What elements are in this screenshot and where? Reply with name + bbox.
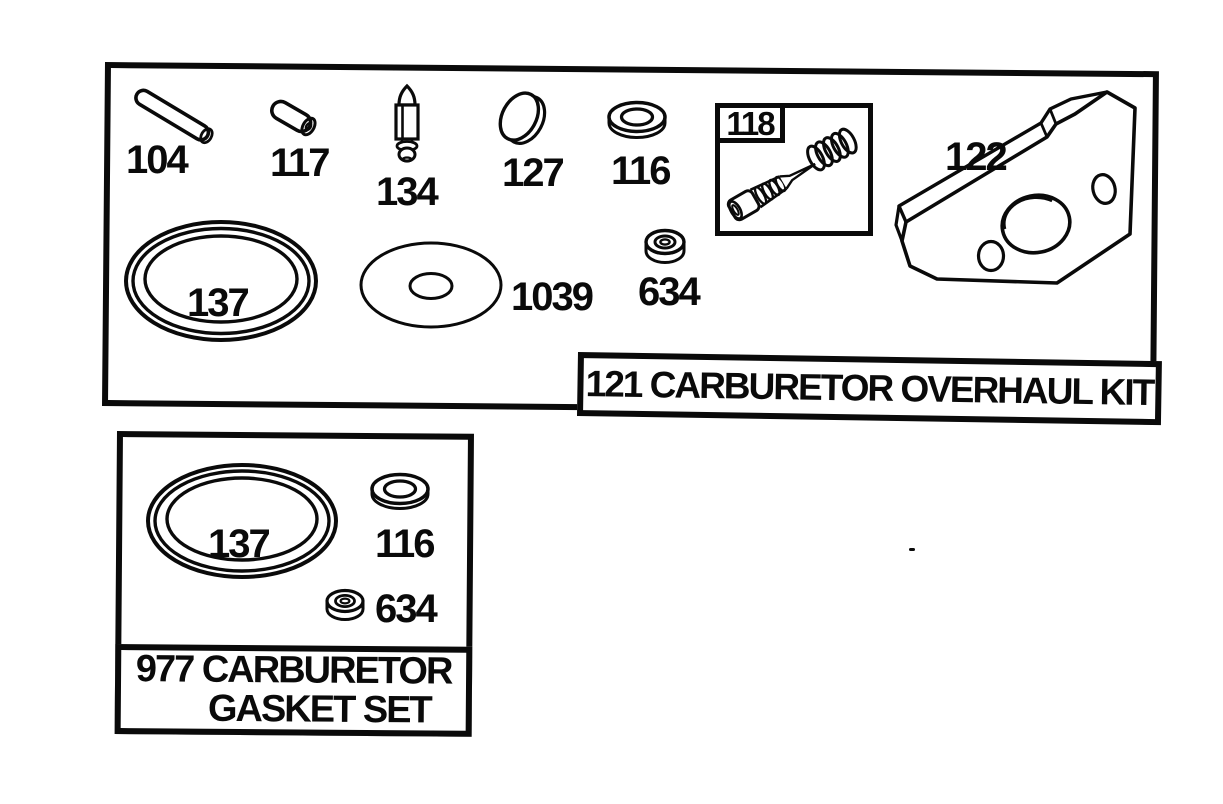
print-speck: [909, 548, 915, 551]
part-label-134: 134: [376, 172, 437, 212]
washer-drawing: [369, 471, 431, 517]
part-label-116: 116: [611, 151, 670, 191]
gasket-set-title-box: 977 CARBURETOR GASKET SET: [115, 644, 473, 737]
seal-drawing: [641, 227, 689, 269]
diaphragm-drawing: [359, 242, 505, 330]
overhaul-kit-title: 121 CARBURETOR OVERHAUL KIT: [585, 363, 1153, 414]
part-label-137: 137: [187, 283, 248, 323]
part-label-104: 104: [126, 140, 187, 180]
part-label-118: 118: [726, 107, 773, 140]
part-label-634: 634: [638, 272, 699, 312]
part-label-117: 117: [270, 143, 329, 183]
spacer-gasket-drawing: [895, 85, 1145, 290]
needle-valve-drawing: [386, 84, 428, 166]
overhaul-kit-title-box: 121 CARBURETOR OVERHAUL KIT: [577, 352, 1162, 425]
mixture-screw-label-tab: 118: [715, 103, 785, 143]
part-label-634-set: 634: [375, 589, 436, 629]
part-label-127: 127: [502, 153, 563, 193]
part-label-137-set: 137: [208, 524, 269, 564]
gasket-set-title-line2: GASKET SET: [208, 690, 431, 730]
part-label-1039: 1039: [511, 277, 592, 317]
gasket-set-title-line1: 977 CARBURETOR: [136, 650, 452, 691]
part-label-116-set: 116: [375, 524, 434, 564]
spring-drawing: [806, 120, 868, 174]
part-label-122: 122: [945, 137, 1006, 177]
tube-drawing: [262, 92, 324, 146]
washer-drawing: [605, 98, 669, 148]
welch-plug-drawing: [490, 86, 554, 150]
seal-drawing: [323, 588, 367, 626]
